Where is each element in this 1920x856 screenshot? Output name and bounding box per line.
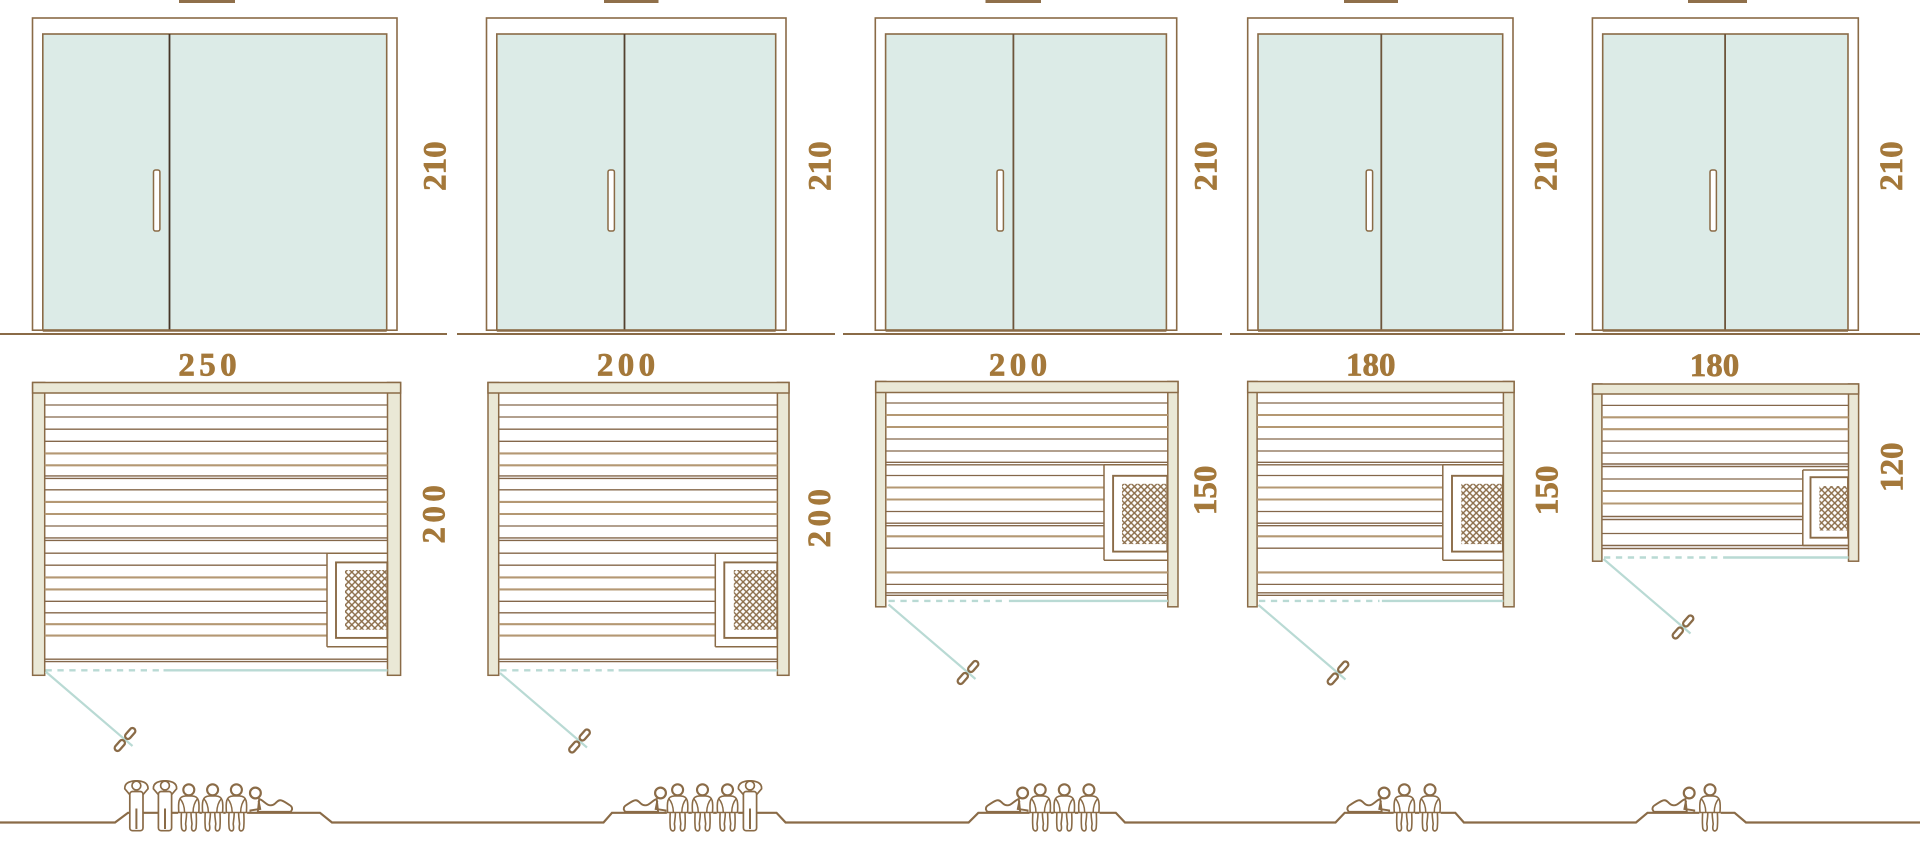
svg-text:200: 200	[989, 347, 1052, 383]
svg-text:180: 180	[1690, 348, 1740, 384]
svg-text:200: 200	[417, 481, 453, 544]
svg-text:210: 210	[1528, 141, 1564, 191]
svg-text:150: 150	[1188, 466, 1224, 516]
svg-text:250: 250	[178, 347, 241, 383]
svg-text:200: 200	[802, 485, 838, 548]
svg-text:200: 200	[597, 347, 660, 383]
svg-text:180: 180	[1346, 347, 1396, 383]
svg-text:210: 210	[417, 141, 453, 191]
svg-text:210: 210	[1874, 141, 1910, 191]
svg-text:150: 150	[1530, 466, 1566, 516]
svg-text:210: 210	[803, 141, 839, 191]
svg-text:120: 120	[1874, 442, 1910, 492]
svg-text:210: 210	[1188, 141, 1224, 191]
